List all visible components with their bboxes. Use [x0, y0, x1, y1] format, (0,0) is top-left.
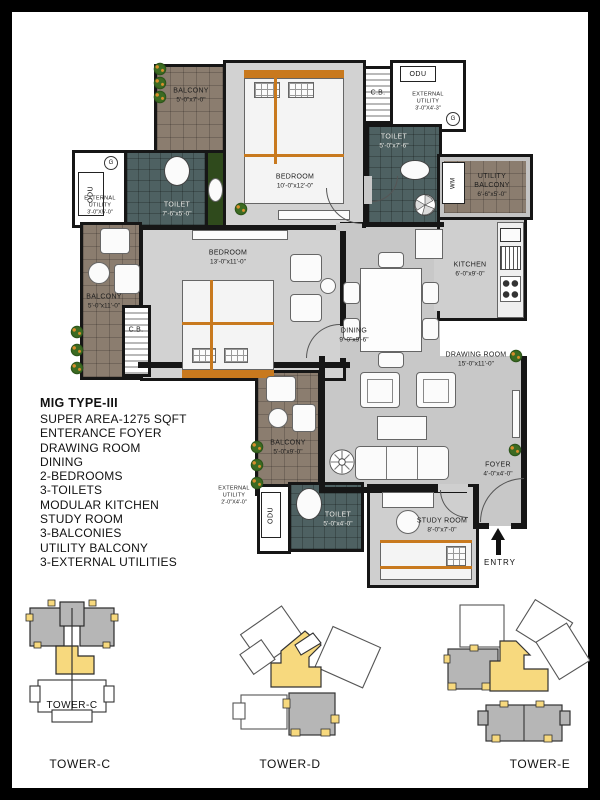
pillow-icon [288, 82, 314, 98]
room-label-toilet-tr: TOILET5'-0"x7'-6" [379, 134, 408, 151]
kitchen-sink-icon [500, 228, 521, 242]
dining-chair-icon [378, 252, 404, 268]
wc-icon [164, 156, 190, 186]
dining-chair-icon [422, 282, 439, 304]
tower-c-inner-label: TOWER-C [46, 700, 97, 711]
wall-drawing-left [319, 356, 325, 492]
room-label-utility-balcony: UTILITY BALCONY6'-6"x5'-0" [466, 173, 518, 199]
room-label-dining: DINING9'-0"x9'-6" [339, 328, 368, 345]
tower-e-keyplan [440, 595, 590, 755]
wc-icon [296, 488, 322, 520]
dining-chair-icon [378, 352, 404, 368]
stove-icon [500, 276, 521, 302]
room-label-balcony-tl: BALCONY5'-0"x7'-0" [173, 88, 209, 105]
legend-title: MIG TYPE-III [40, 396, 187, 410]
balcony-table-icon [88, 262, 110, 284]
plant-icon [153, 90, 167, 104]
room-label-balcony-bottom: BALCONY5'-0"x9'-0" [270, 440, 306, 457]
room-label-drawing-room: DRAWING ROOM15'-0"x11'-0" [446, 352, 507, 369]
legend-line: DRAWING ROOM [40, 441, 187, 455]
exhaust-fan-icon [412, 192, 438, 218]
geyser-icon: G [104, 156, 118, 170]
plant-icon [509, 349, 523, 363]
armchair-icon [290, 254, 322, 282]
room-label-ext-utility-tr: EXTERNAL UTILITY3'-0"X4'-3" [404, 92, 452, 113]
room-label-study-room: STUDY ROOM8'-0"x7'-0" [417, 518, 467, 535]
room-label-toilet-tl: TOILET7'-6"x5'-0" [162, 202, 191, 219]
room-label-kitchen: KITCHEN6'-0"x9'-0" [454, 262, 487, 279]
room-label-toilet-bottom: TOILET5'-0"x4'-0" [323, 512, 352, 529]
sofa-icon [355, 446, 449, 480]
wardrobe-icon [192, 230, 288, 240]
side-table-icon [320, 278, 336, 294]
ceiling-fan-icon [328, 448, 356, 476]
legend-line: STUDY ROOM [40, 512, 187, 526]
bed-runner [380, 566, 472, 569]
armchair-icon [416, 372, 456, 408]
door-gap-bedroom-top [336, 223, 362, 231]
plant-icon [508, 443, 522, 457]
armchair-icon [290, 294, 322, 322]
legend-line: MODULAR KITCHEN [40, 498, 187, 512]
kitchen-drainboard [500, 246, 521, 270]
room-label-ext-utility-tl: EXTERNAL UTILITY3'-0"X5'-0" [78, 196, 122, 217]
washing-machine-box: WM [442, 162, 465, 204]
coffee-table-icon [377, 416, 427, 440]
label-cupboard-left: C.B. [129, 327, 144, 336]
door-gap-toilet-tr [364, 176, 372, 204]
legend-line: UTILITY BALCONY [40, 541, 187, 555]
tv-unit-icon [512, 390, 520, 438]
odu-box: ODU [400, 66, 436, 82]
label-cupboard-top: C.B. [371, 90, 386, 99]
balcony-chair-icon [100, 228, 130, 254]
page-background: ODU G ODU G ODU WM BALCONY5'-0"x7'-0" EX… [12, 12, 588, 788]
bed-runner [244, 154, 344, 157]
room-label-balcony-left: BALCONY5'-0"x11'-0" [86, 294, 122, 311]
wall-foyer-bottom-b [511, 523, 527, 529]
entry-label: ENTRY [484, 558, 516, 567]
bed-runner [380, 540, 472, 543]
tower-d-label: TOWER-D [242, 757, 338, 771]
entry-arrow-icon [491, 528, 505, 555]
plant-icon [250, 458, 264, 472]
plant-icon [70, 361, 84, 375]
legend-line: 2-BEDROOMS [40, 469, 187, 483]
tower-d-keyplan [225, 597, 383, 749]
unit-legend: MIG TYPE-III SUPER AREA-1275 SQFT ENTERA… [40, 396, 187, 569]
bed-headboard [182, 370, 274, 378]
legend-line: DINING [40, 455, 187, 469]
pillow-icon [224, 348, 248, 363]
dining-chair-icon [343, 282, 360, 304]
armchair-icon [360, 372, 400, 408]
floorplan-page: ODU G ODU G ODU WM BALCONY5'-0"x7'-0" EX… [0, 0, 600, 800]
balcony-chair-icon [292, 404, 316, 432]
room-label-ext-utility-bottom: EXTERNAL UTILITY2'-0"X4'-0" [214, 486, 254, 507]
geyser-icon: G [446, 112, 460, 126]
wall-foyer-bottom-a [479, 523, 489, 529]
dining-table-icon [360, 268, 422, 352]
plant-icon [250, 440, 264, 454]
plant-icon [153, 76, 167, 90]
study-side-table [446, 546, 466, 566]
plant-icon [70, 325, 84, 339]
tower-c-keyplan: TOWER-C [22, 592, 122, 744]
study-desk-icon [382, 492, 434, 508]
bed-runner [182, 322, 274, 325]
balcony-chair-icon [114, 264, 140, 294]
legend-line: 3-EXTERNAL UTILITIES [40, 555, 187, 569]
plant-icon [234, 202, 248, 216]
washbasin-icon [208, 178, 223, 202]
balcony-chair-icon [266, 376, 296, 402]
room-label-bedroom-top: BEDROOM10'-0"x12'-0" [276, 174, 314, 191]
plant-icon [70, 343, 84, 357]
room-label-bedroom-left: BEDROOM13'-0"x11'-0" [209, 250, 247, 267]
tower-c-label: TOWER-C [32, 757, 128, 771]
tower-e-label: TOWER-E [492, 757, 588, 771]
legend-line: 3-BALCONIES [40, 526, 187, 540]
legend-line: ENTERANCE FOYER [40, 426, 187, 440]
bed-headboard [244, 70, 344, 78]
balcony-table-icon [268, 408, 288, 428]
room-label-foyer: FOYER4'-0"x4'-0" [483, 462, 512, 479]
bed-runner [210, 280, 213, 370]
wc-icon [400, 160, 430, 180]
legend-line: 3-TOILETS [40, 483, 187, 497]
bed-runner [274, 78, 277, 164]
plant-icon [153, 62, 167, 76]
legend-line: SUPER AREA-1275 SQFT [40, 412, 187, 426]
odu-box: ODU [261, 492, 281, 538]
dining-chair-icon [422, 318, 439, 340]
fridge-icon [415, 229, 443, 259]
